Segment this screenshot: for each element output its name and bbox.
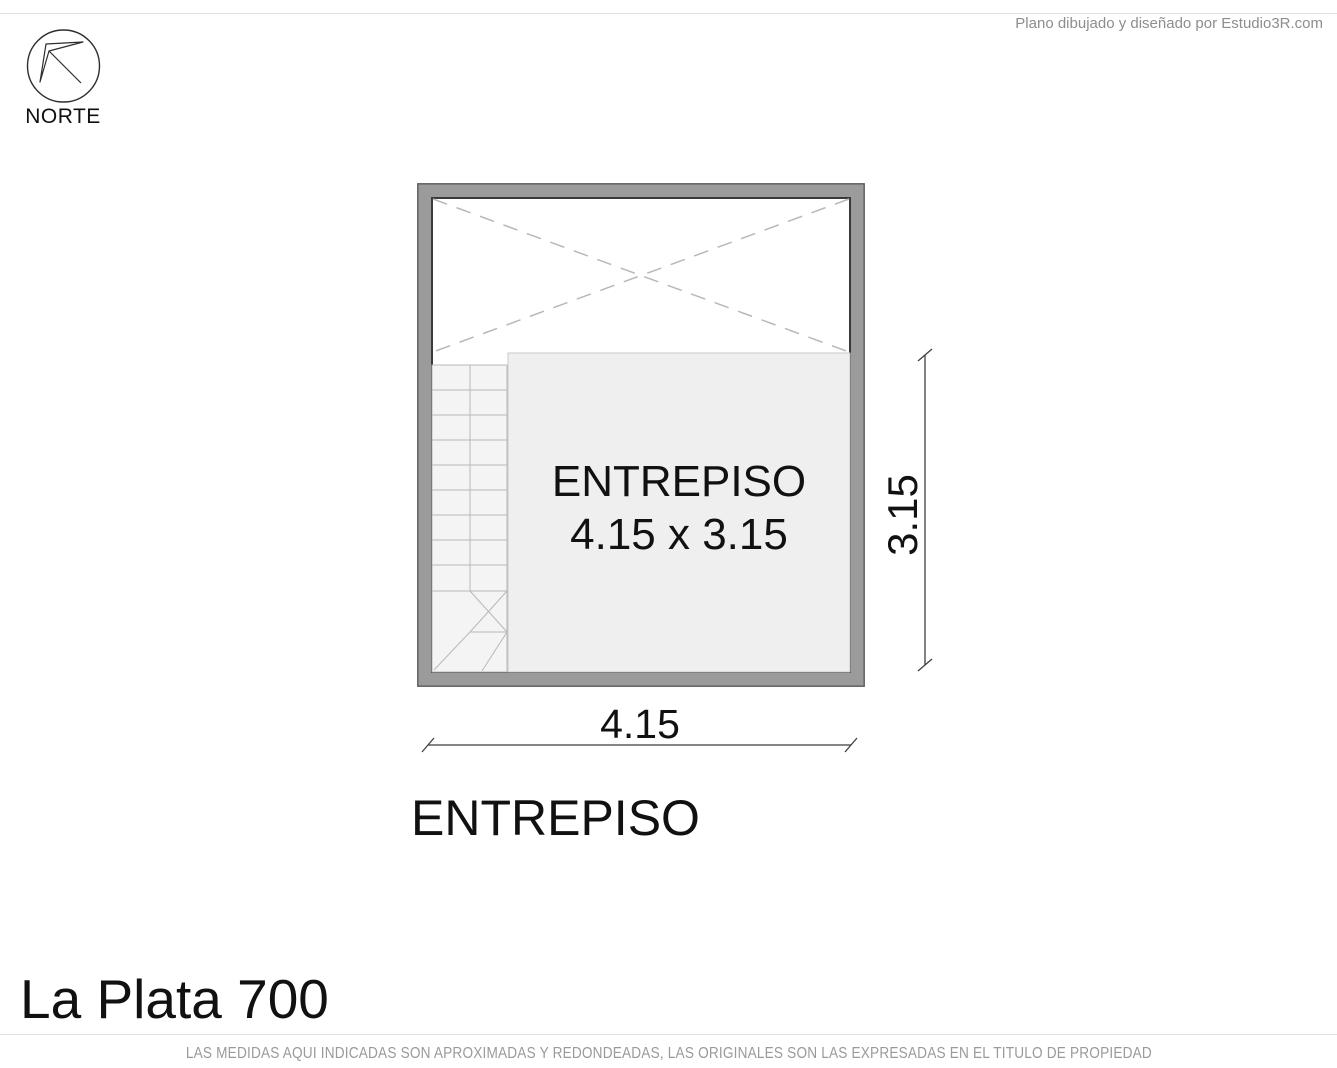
room-name: ENTREPISO bbox=[508, 455, 850, 508]
room-size: 4.15 x 3.15 bbox=[508, 508, 850, 561]
width-dimension-value: 4.15 bbox=[600, 701, 680, 748]
floorplan-drawing bbox=[417, 183, 865, 687]
north-arrow-icon bbox=[26, 28, 101, 103]
bottom-divider bbox=[0, 1034, 1337, 1035]
disclaimer: LAS MEDIDAS AQUI INDICADAS SON APROXIMAD… bbox=[0, 1045, 1337, 1063]
height-dimension-value: 3.15 bbox=[879, 474, 927, 556]
top-divider bbox=[0, 13, 1337, 14]
credit-text: Plano dibujado y diseñado por Estudio3R.… bbox=[1015, 15, 1323, 32]
north-compass: NORTE bbox=[23, 28, 103, 129]
north-label: NORTE bbox=[23, 105, 103, 129]
address-title: La Plata 700 bbox=[20, 967, 329, 1031]
floor-title: ENTREPISO bbox=[411, 789, 700, 847]
room-label: ENTREPISO 4.15 x 3.15 bbox=[508, 455, 850, 561]
disclaimer-text: LAS MEDIDAS AQUI INDICADAS SON APROXIMAD… bbox=[185, 1045, 1151, 1063]
staircase bbox=[432, 365, 507, 672]
